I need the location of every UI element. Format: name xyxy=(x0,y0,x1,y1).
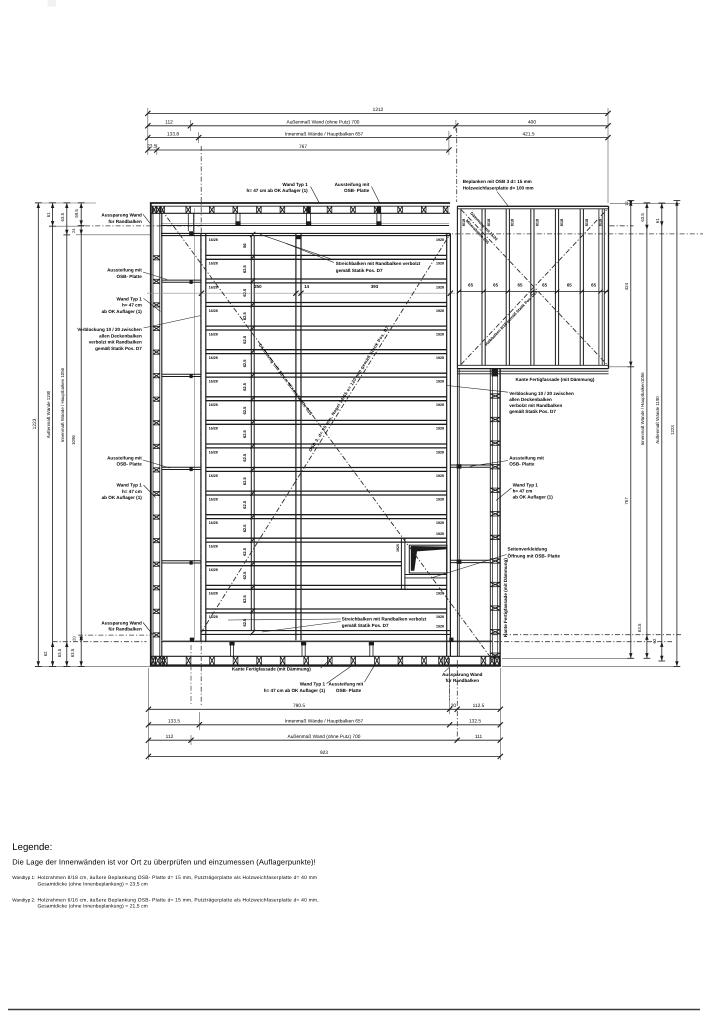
svg-text:Wand Typ 1: Wand Typ 1 xyxy=(513,483,539,488)
svg-text:62.5: 62.5 xyxy=(242,618,247,627)
svg-text:16/28: 16/28 xyxy=(209,332,218,336)
svg-text:61: 61 xyxy=(655,218,660,223)
svg-text:Außenmaß Wand (ohne Putz) 700: Außenmaß Wand (ohne Putz) 700 xyxy=(287,120,360,126)
svg-text:62.5: 62.5 xyxy=(242,312,247,321)
svg-text:65: 65 xyxy=(468,283,473,288)
svg-text:62.5: 62.5 xyxy=(242,500,247,509)
svg-text:62.5: 62.5 xyxy=(242,264,247,273)
svg-text:112.5: 112.5 xyxy=(473,703,485,709)
svg-text:gemäß Statik Pos. D7: gemäß Statik Pos. D7 xyxy=(95,346,142,351)
svg-text:Innenmaß Wände / Hauptbalken 6: Innenmaß Wände / Hauptbalken 657 xyxy=(285,719,364,725)
svg-text:8/18: 8/18 xyxy=(585,219,589,226)
svg-text:Streichbalken mit Randbalken v: Streichbalken mit Randbalken verbolzt xyxy=(342,617,427,622)
svg-text:Holzrahmen 8/18 cm, äußere Bep: Holzrahmen 8/18 cm, äußere Beplankung OS… xyxy=(38,875,318,881)
svg-text:59.5: 59.5 xyxy=(74,209,79,218)
svg-text:1928: 1928 xyxy=(436,615,444,619)
svg-text:Aussteifung mit: Aussteifung mit xyxy=(509,455,544,460)
svg-text:16/28: 16/28 xyxy=(209,615,218,619)
svg-text:767: 767 xyxy=(299,144,307,150)
svg-text:1920: 1920 xyxy=(396,544,400,552)
svg-text:62.5: 62.5 xyxy=(242,571,247,580)
svg-text:16/28: 16/28 xyxy=(209,497,218,501)
svg-text:OSB- Platte: OSB- Platte xyxy=(509,461,535,466)
svg-text:62.5: 62.5 xyxy=(242,477,247,486)
svg-text:Aussparung Wand: Aussparung Wand xyxy=(101,620,142,625)
svg-text:65: 65 xyxy=(493,283,498,288)
svg-text:63.5: 63.5 xyxy=(640,213,645,222)
svg-text:Öffnung mit OSB- Platte: Öffnung mit OSB- Platte xyxy=(508,554,561,559)
svg-text:16/28: 16/28 xyxy=(209,309,218,313)
svg-text:Aussteifung mit: Aussteifung mit xyxy=(335,182,370,187)
svg-text:1928: 1928 xyxy=(436,450,444,454)
svg-text:allen Deckenbalken: allen Deckenbalken xyxy=(99,333,142,338)
svg-text:Außenmaß Wände 1190: Außenmaß Wände 1190 xyxy=(655,396,660,444)
svg-text:1928: 1928 xyxy=(436,625,444,629)
svg-text:1928: 1928 xyxy=(436,309,444,313)
svg-text:für Randbalken: für Randbalken xyxy=(108,627,142,632)
svg-text:16/28: 16/28 xyxy=(209,285,218,289)
svg-text:62.5: 62.5 xyxy=(242,453,247,462)
svg-text:1928: 1928 xyxy=(436,380,444,384)
svg-text:65: 65 xyxy=(542,283,547,288)
svg-text:h= 47 cm: h= 47 cm xyxy=(122,489,142,494)
svg-text:Aussteifung mit: Aussteifung mit xyxy=(107,268,142,273)
svg-text:1928: 1928 xyxy=(436,427,444,431)
svg-text:65: 65 xyxy=(518,283,523,288)
svg-text:1223: 1223 xyxy=(32,418,38,429)
svg-text:h= 47 cm ab OK Auflager (1): h= 47 cm ab OK Auflager (1) xyxy=(264,688,326,693)
svg-text:h= 47 cm: h= 47 cm xyxy=(122,303,142,308)
svg-text:790.5: 790.5 xyxy=(293,703,305,709)
svg-text:133.5: 133.5 xyxy=(168,719,180,725)
svg-text:8/18: 8/18 xyxy=(599,219,603,226)
svg-text:Verblockung 10 / 20 zwischen: Verblockung 10 / 20 zwischen xyxy=(509,391,574,396)
svg-text:1928: 1928 xyxy=(436,356,444,360)
svg-text:h= 47 cm: h= 47 cm xyxy=(513,489,533,494)
svg-text:gemäß Statik Pos. D7: gemäß Statik Pos. D7 xyxy=(336,268,383,273)
svg-text:1928: 1928 xyxy=(436,532,444,536)
svg-text:ab OK Auflager (1): ab OK Auflager (1) xyxy=(102,495,143,500)
svg-text:1928: 1928 xyxy=(436,474,444,478)
svg-text:23.5: 23.5 xyxy=(147,143,157,149)
svg-text:767: 767 xyxy=(624,497,629,505)
svg-text:Aussparung Wand: Aussparung Wand xyxy=(442,672,483,677)
svg-text:112: 112 xyxy=(165,120,173,126)
svg-text:250: 250 xyxy=(254,284,262,289)
svg-text:400: 400 xyxy=(528,120,536,126)
svg-text:Wandtyp 1:: Wandtyp 1: xyxy=(12,875,35,880)
svg-text:62.5: 62.5 xyxy=(242,429,247,438)
svg-text:62.5: 62.5 xyxy=(242,547,247,556)
svg-text:63.5: 63.5 xyxy=(57,648,62,657)
svg-text:verbolzt mit Randbalken: verbolzt mit Randbalken xyxy=(509,403,562,408)
svg-text:16/28: 16/28 xyxy=(209,450,218,454)
svg-text:1928: 1928 xyxy=(436,521,444,525)
svg-text:65: 65 xyxy=(591,283,596,288)
svg-text:393: 393 xyxy=(371,284,379,289)
svg-text:62: 62 xyxy=(43,651,48,656)
svg-text:16/28: 16/28 xyxy=(209,262,218,266)
svg-text:Kante Fertigfassade (mit Dämmu: Kante Fertigfassade (mit Dämmung) xyxy=(232,667,311,672)
svg-text:63.5: 63.5 xyxy=(60,212,65,221)
svg-text:20: 20 xyxy=(451,703,457,709)
svg-text:verbolzt mit Randbalken: verbolzt mit Randbalken xyxy=(89,340,142,345)
svg-text:Holzweichfaserplatte d= 100 mm: Holzweichfaserplatte d= 100 mm xyxy=(463,186,534,191)
svg-text:Gesamtdicke (ohne Innenbeplank: Gesamtdicke (ohne Innenbeplankung) = 23,… xyxy=(38,881,148,887)
svg-text:16/28: 16/28 xyxy=(209,474,218,478)
svg-text:OSB- Platte: OSB- Platte xyxy=(336,688,362,693)
svg-text:16/28: 16/28 xyxy=(209,238,218,242)
svg-text:16/28: 16/28 xyxy=(209,380,218,384)
svg-text:65: 65 xyxy=(567,283,572,288)
svg-text:OSB- Platte: OSB- Platte xyxy=(117,462,143,467)
svg-text:h= 47 cm ab OK Auflager (1): h= 47 cm ab OK Auflager (1) xyxy=(246,188,308,193)
svg-text:16/28: 16/28 xyxy=(209,568,218,572)
svg-text:62.5: 62.5 xyxy=(242,406,247,415)
svg-text:1223: 1223 xyxy=(670,425,675,435)
svg-text:für Randbalken: für Randbalken xyxy=(446,678,480,683)
svg-text:Aussteifung mit: Aussteifung mit xyxy=(328,681,363,686)
svg-text:62.5: 62.5 xyxy=(242,359,247,368)
svg-text:für Randbalken: für Randbalken xyxy=(108,219,142,224)
svg-text:Wand Typ 1: Wand Typ 1 xyxy=(282,182,308,187)
svg-text:Beplanken mit OSB 3 d= 15 mm: Beplanken mit OSB 3 d= 15 mm xyxy=(463,179,532,184)
svg-text:Außenmaß Wände 1190: Außenmaß Wände 1190 xyxy=(46,390,51,438)
svg-text:62.5: 62.5 xyxy=(242,335,247,344)
svg-text:Wand Typ 1: Wand Typ 1 xyxy=(117,296,143,301)
svg-text:Kante Fertigfassade (mit Dämmu: Kante Fertigfassade (mit Dämmung) xyxy=(516,377,595,382)
svg-text:Innenmaß Wände / Hauptbalken 6: Innenmaß Wände / Hauptbalken 657 xyxy=(285,131,364,137)
svg-text:1928: 1928 xyxy=(436,262,444,266)
svg-text:Die Lage der Innenwänden ist v: Die Lage der Innenwänden ist vor Ort zu … xyxy=(12,858,316,867)
svg-text:Gesamtdicke (ohne Innenbeplank: Gesamtdicke (ohne Innenbeplankung) = 21,… xyxy=(38,904,148,910)
svg-text:14: 14 xyxy=(304,284,309,289)
svg-text:Innenmaß Wände / Hauptbalken 1: Innenmaß Wände / Hauptbalken 1056 xyxy=(60,367,65,442)
svg-text:63.5: 63.5 xyxy=(70,648,75,657)
svg-text:Seitenverkleidung: Seitenverkleidung xyxy=(508,547,548,552)
svg-text:1212: 1212 xyxy=(373,107,384,113)
svg-text:133.8: 133.8 xyxy=(167,131,179,137)
svg-text:1928: 1928 xyxy=(436,285,444,289)
svg-text:62.5: 62.5 xyxy=(242,524,247,533)
svg-text:62.5: 62.5 xyxy=(242,594,247,603)
svg-text:16/28: 16/28 xyxy=(209,356,218,360)
svg-text:Wand Typ 1: Wand Typ 1 xyxy=(117,483,143,488)
svg-text:Aussteifung mit: Aussteifung mit xyxy=(107,455,142,460)
svg-text:1928: 1928 xyxy=(436,238,444,242)
svg-text:gemäß Statik Pos. D7: gemäß Statik Pos. D7 xyxy=(509,409,556,414)
svg-text:Innenmaß Wände / Hauptbalken10: Innenmaß Wände / Hauptbalken1056 xyxy=(640,372,645,446)
svg-text:424: 424 xyxy=(624,282,629,290)
svg-text:Holzrahmen 6/16 cm, äußere Bep: Holzrahmen 6/16 cm, äußere Beplankung OS… xyxy=(38,897,319,903)
svg-text:111: 111 xyxy=(475,734,483,740)
svg-text:OSB- Platte: OSB- Platte xyxy=(117,274,143,279)
svg-text:923: 923 xyxy=(320,750,328,756)
svg-text:16/28: 16/28 xyxy=(209,521,218,525)
svg-text:24: 24 xyxy=(71,228,76,233)
svg-text:132.5: 132.5 xyxy=(469,719,481,725)
svg-text:Aussparung Wand: Aussparung Wand xyxy=(101,213,142,218)
svg-text:63.5: 63.5 xyxy=(637,623,642,632)
svg-text:1096: 1096 xyxy=(71,435,76,445)
svg-text:8/18: 8/18 xyxy=(560,219,564,226)
svg-text:8/18: 8/18 xyxy=(535,219,539,226)
svg-text:61: 61 xyxy=(46,212,51,217)
svg-text:16/28: 16/28 xyxy=(209,545,218,549)
svg-text:Streichbalken mit Randbalken v: Streichbalken mit Randbalken verbolzt xyxy=(336,261,421,266)
svg-text:62.5: 62.5 xyxy=(242,382,247,391)
svg-text:OSB- Platte: OSB- Platte xyxy=(344,188,370,193)
svg-text:1928: 1928 xyxy=(436,403,444,407)
svg-text:gemäß Statik Pos. D7: gemäß Statik Pos. D7 xyxy=(342,623,389,628)
svg-text:Legende:: Legende: xyxy=(12,842,52,853)
svg-text:Wand Typ 1: Wand Typ 1 xyxy=(300,681,326,686)
svg-text:421.5: 421.5 xyxy=(522,131,534,137)
svg-text:62.5: 62.5 xyxy=(242,288,247,297)
svg-text:56: 56 xyxy=(242,243,247,248)
svg-text:Wandtyp 2:: Wandtyp 2: xyxy=(12,897,35,902)
svg-text:ab OK Auflager (1): ab OK Auflager (1) xyxy=(513,495,554,500)
svg-text:16/28: 16/28 xyxy=(209,403,218,407)
svg-text:112: 112 xyxy=(166,734,174,740)
svg-text:16/28: 16/28 xyxy=(209,427,218,431)
svg-text:Außenmaß Wand (ohne Putz) 700: Außenmaß Wand (ohne Putz) 700 xyxy=(288,734,361,740)
svg-text:16/28: 16/28 xyxy=(209,592,218,596)
svg-text:1928: 1928 xyxy=(436,332,444,336)
svg-text:20: 20 xyxy=(71,636,76,641)
svg-text:allen Deckenbalken: allen Deckenbalken xyxy=(509,397,552,402)
svg-text:1928: 1928 xyxy=(436,497,444,501)
svg-text:Verblockung 10 / 20 zwischen: Verblockung 10 / 20 zwischen xyxy=(77,327,142,332)
svg-text:8/18: 8/18 xyxy=(511,219,515,226)
svg-text:62: 62 xyxy=(652,638,657,643)
svg-text:12: 12 xyxy=(624,201,629,206)
svg-text:1928: 1928 xyxy=(436,592,444,596)
svg-text:ab OK Auflager (1): ab OK Auflager (1) xyxy=(102,309,143,314)
svg-text:Kante Fertigfassade (mit Dämmu: Kante Fertigfassade (mit Dämmung) xyxy=(503,558,508,637)
